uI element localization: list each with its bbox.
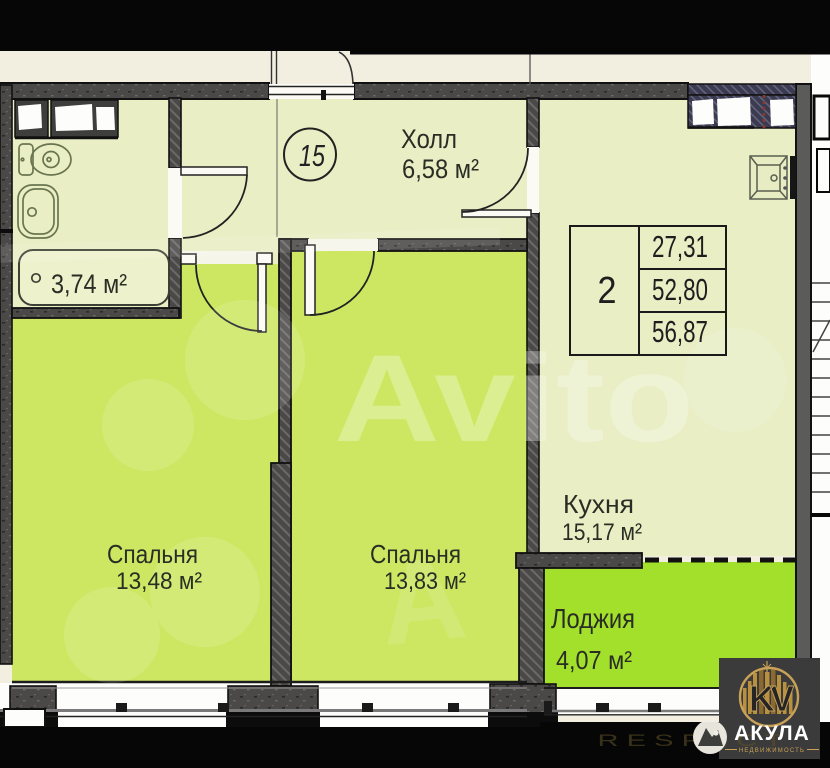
svg-text:6,58 м²: 6,58 м²: [402, 154, 479, 184]
svg-text:52,80: 52,80: [652, 272, 708, 307]
svg-text:15: 15: [299, 138, 326, 173]
svg-text:15,17 м²: 15,17 м²: [562, 519, 642, 546]
svg-text:56,87: 56,87: [652, 314, 708, 349]
svg-text:3,74 м²: 3,74 м²: [51, 269, 127, 299]
svg-text:13,48 м²: 13,48 м²: [116, 568, 202, 595]
svg-text:2: 2: [598, 270, 617, 312]
svg-text:KV: KV: [749, 678, 794, 719]
svg-text:27,31: 27,31: [652, 229, 708, 264]
svg-text:Холл: Холл: [401, 124, 457, 154]
svg-text:13,83 м²: 13,83 м²: [384, 568, 466, 595]
svg-text:АКУЛА: АКУЛА: [734, 722, 810, 745]
svg-text:Спальня: Спальня: [370, 539, 461, 569]
svg-text:Лоджия: Лоджия: [551, 603, 635, 634]
svg-text:4,07 м²: 4,07 м²: [556, 645, 632, 675]
svg-text:Кухня: Кухня: [563, 489, 634, 519]
svg-text:НЕДВИЖИМОСТЬ: НЕДВИЖИМОСТЬ: [739, 748, 805, 754]
svg-text:Спальня: Спальня: [107, 539, 198, 569]
